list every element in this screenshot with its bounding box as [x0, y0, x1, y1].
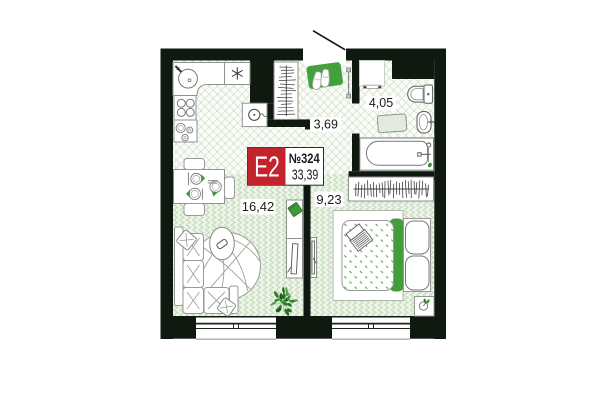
svg-text:9,23: 9,23 [316, 192, 341, 207]
svg-text:№324: №324 [289, 151, 320, 166]
svg-text:16,42: 16,42 [242, 199, 275, 214]
svg-text:4,05: 4,05 [369, 96, 393, 110]
svg-text:33,39: 33,39 [292, 167, 319, 184]
svg-text:E2: E2 [254, 152, 280, 184]
svg-text:3,69: 3,69 [314, 117, 338, 131]
